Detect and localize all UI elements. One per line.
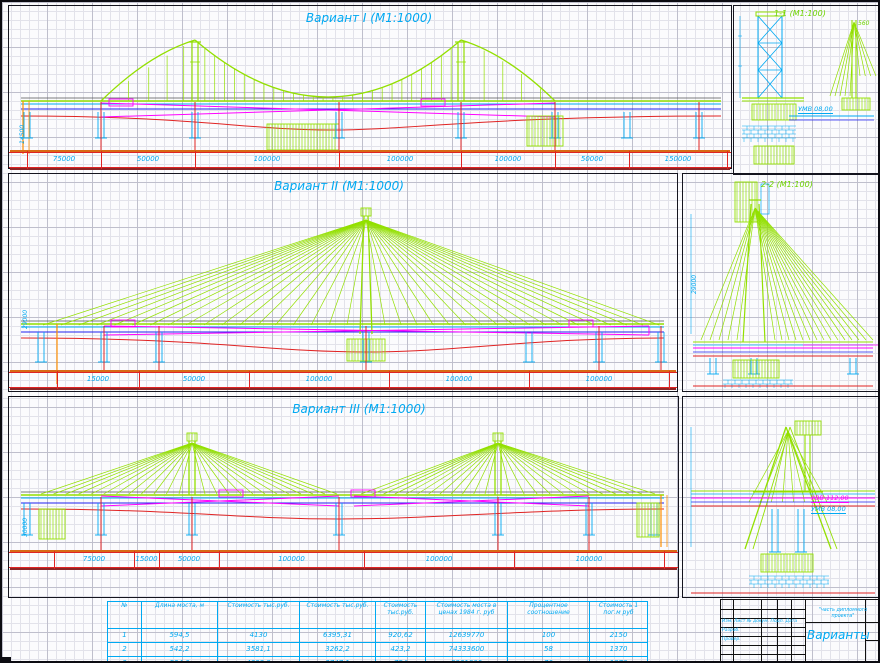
dimension-label: 50000 — [178, 555, 200, 563]
variant3-dimension-strip: 750001500050000100000100000100000 — [9, 552, 678, 568]
section1-dim-label: 560 — [858, 20, 869, 27]
section3-drawing — [683, 397, 880, 599]
dimension-label: 50000 — [183, 375, 205, 383]
section2-title: 2-2 (М1:100) — [761, 180, 813, 189]
table-header-cell: Стоимость тыс.руб. — [376, 602, 426, 629]
dimension-tick — [514, 551, 515, 569]
table-cell: 3581,1 — [218, 643, 300, 657]
high-water-level-label: УВВ 112,00 — [811, 495, 849, 503]
water-level-label: УМВ 08,00 — [798, 106, 833, 114]
dimension-tick — [339, 151, 340, 169]
dimension-tick — [529, 371, 530, 389]
table-cell: 542,2 — [142, 643, 218, 657]
table-cell: 534,6 — [142, 657, 218, 663]
vertical-dim-label: 30000 — [22, 518, 29, 537]
section3-panel: УВВ 112,00 УМВ 08,00 — [682, 396, 880, 598]
table-cell: 70 — [508, 657, 590, 663]
dimension-label: 75000 — [53, 155, 75, 163]
table-cell: 4322,9 — [218, 657, 300, 663]
section1-panel: 1-1 (М1:100) 560 УМВ 08,00 — [733, 5, 880, 175]
vertical-dim-label: 29000 — [691, 275, 698, 294]
section2-panel: 2-2 (М1:100) 29000 — [682, 173, 880, 392]
dimension-tick — [727, 151, 728, 169]
dimension-tick — [249, 371, 250, 389]
table-header-cell: Стоимость тыс.руб. — [218, 602, 300, 629]
stamp-developed-label: Разраб. — [722, 628, 740, 633]
table-header-cell: Стоимость моста в ценах 1984 г. руб — [426, 602, 508, 629]
dimension-tick — [664, 551, 665, 569]
dimension-label: 100000 — [495, 155, 522, 163]
dimension-tick — [195, 151, 196, 169]
dimension-tick — [555, 151, 556, 169]
dimension-tick — [219, 551, 220, 569]
dimension-label: 100000 — [278, 555, 305, 563]
table-cell: 4130 — [218, 629, 300, 643]
dimension-label: 150000 — [665, 155, 692, 163]
dimension-tick — [27, 151, 28, 169]
cost-comparison-table: №Длина моста, мСтоимость тыс.руб.Стоимос… — [107, 601, 648, 663]
dimension-label: 50000 — [137, 155, 159, 163]
variant2-dimension-strip: 1500050000100000100000100000 — [9, 372, 677, 388]
vertical-dim-label: 14500 — [19, 125, 26, 144]
dimension-label: 100000 — [586, 375, 613, 383]
dimension-tick — [629, 151, 630, 169]
stamp-sheet-title: Варианты — [807, 628, 867, 642]
stamp-line — [805, 600, 806, 661]
table-cell: 1370 — [590, 643, 648, 657]
table-header-cell: Стоимость 1 пог.м руб — [590, 602, 648, 629]
table-cell: 58 — [508, 643, 590, 657]
variant2-panel: Вариант II (М1:1000) 29000 1500050000100… — [8, 173, 678, 392]
table-header-cell: Процентное соотношение — [508, 602, 590, 629]
table-cell: 74333600 — [426, 643, 508, 657]
stamp-line — [761, 600, 762, 661]
table-header-cell: № — [108, 602, 142, 629]
low-water-level-label: УМВ 08,00 — [811, 506, 846, 514]
table-header-cell: Длина моста, м — [142, 602, 218, 629]
dimension-label: 100000 — [426, 555, 453, 563]
dimension-tick — [101, 151, 102, 169]
variant1-panel: Вариант I (М1:1000) 14500 75000500001000… — [8, 5, 732, 169]
table-cell: 594,5 — [142, 629, 218, 643]
table-cell: 3262,2 — [300, 643, 376, 657]
stamp-document-note: "часть дипломного проекта" — [807, 608, 879, 620]
table-cell: 1870 — [590, 657, 648, 663]
table-cell: 8961800 — [426, 657, 508, 663]
table-cell: 423,2 — [376, 643, 426, 657]
stamp-line — [777, 600, 778, 661]
dimension-label: 100000 — [446, 375, 473, 383]
cad-drawing-sheet: Вариант I (М1:1000) 14500 75000500001000… — [0, 0, 880, 663]
title-block: Изм. Лист № докум. Подп. Дата Разраб. Пр… — [720, 599, 880, 663]
dimension-label: 75000 — [83, 555, 105, 563]
dimension-tick — [461, 151, 462, 169]
variant3-drawing — [9, 397, 680, 599]
dimension-label: 15000 — [135, 555, 157, 563]
table-row: 1594,541306395,31920,62126397701002150 — [108, 629, 648, 643]
dimension-tick — [669, 371, 670, 389]
table-cell: 754 — [376, 657, 426, 663]
table-header-cell: Стоимость тыс.руб. — [300, 602, 376, 629]
dimension-tick — [57, 371, 58, 389]
dimension-label: 100000 — [306, 375, 333, 383]
section1-drawing — [734, 6, 880, 176]
variant1-drawing — [9, 6, 733, 170]
dimension-label: 100000 — [254, 155, 281, 163]
section1-title: 1-1 (М1:100) — [774, 9, 826, 18]
stamp-revision-labels: Изм. Лист № докум. Подп. Дата — [722, 619, 797, 624]
table-cell: 1 — [108, 629, 142, 643]
table-cell: 6395,31 — [300, 629, 376, 643]
table-row: 3534,64322,93747,17548961800701870 — [108, 657, 648, 663]
variant2-title: Вариант II (М1:1000) — [274, 179, 404, 193]
dimension-tick — [139, 371, 140, 389]
vertical-dim-label: 29000 — [22, 310, 29, 329]
dimension-tick — [364, 551, 365, 569]
table-row: 2542,23581,13262,2423,274333600581370 — [108, 643, 648, 657]
dimension-label: 100000 — [576, 555, 603, 563]
stamp-line — [805, 622, 880, 623]
variant2-drawing — [9, 174, 679, 393]
table-cell: 2 — [108, 643, 142, 657]
variant3-title: Вариант III (М1:1000) — [292, 402, 425, 416]
dimension-tick — [389, 371, 390, 389]
dimension-tick — [54, 551, 55, 569]
section2-drawing — [683, 174, 880, 393]
stamp-line — [791, 600, 792, 661]
table-cell: 100 — [508, 629, 590, 643]
dimension-label: 15000 — [87, 375, 109, 383]
dimension-tick — [159, 551, 160, 569]
dimension-label: 100000 — [387, 155, 414, 163]
stamp-checked-label: Провер. — [722, 637, 741, 642]
table-cell: 3 — [108, 657, 142, 663]
variant3-panel: Вариант III (М1:1000) 30000 750001500050… — [8, 396, 679, 598]
dimension-label: 50000 — [581, 155, 603, 163]
table-cell: 3747,1 — [300, 657, 376, 663]
frame-corner-mark — [2, 657, 11, 663]
table-cell: 920,62 — [376, 629, 426, 643]
variant1-title: Вариант I (М1:1000) — [306, 11, 432, 25]
table-cell: 12639770 — [426, 629, 508, 643]
table-cell: 2150 — [590, 629, 648, 643]
variant1-dimension-strip: 750005000010000010000010000050000150000 — [9, 152, 731, 168]
